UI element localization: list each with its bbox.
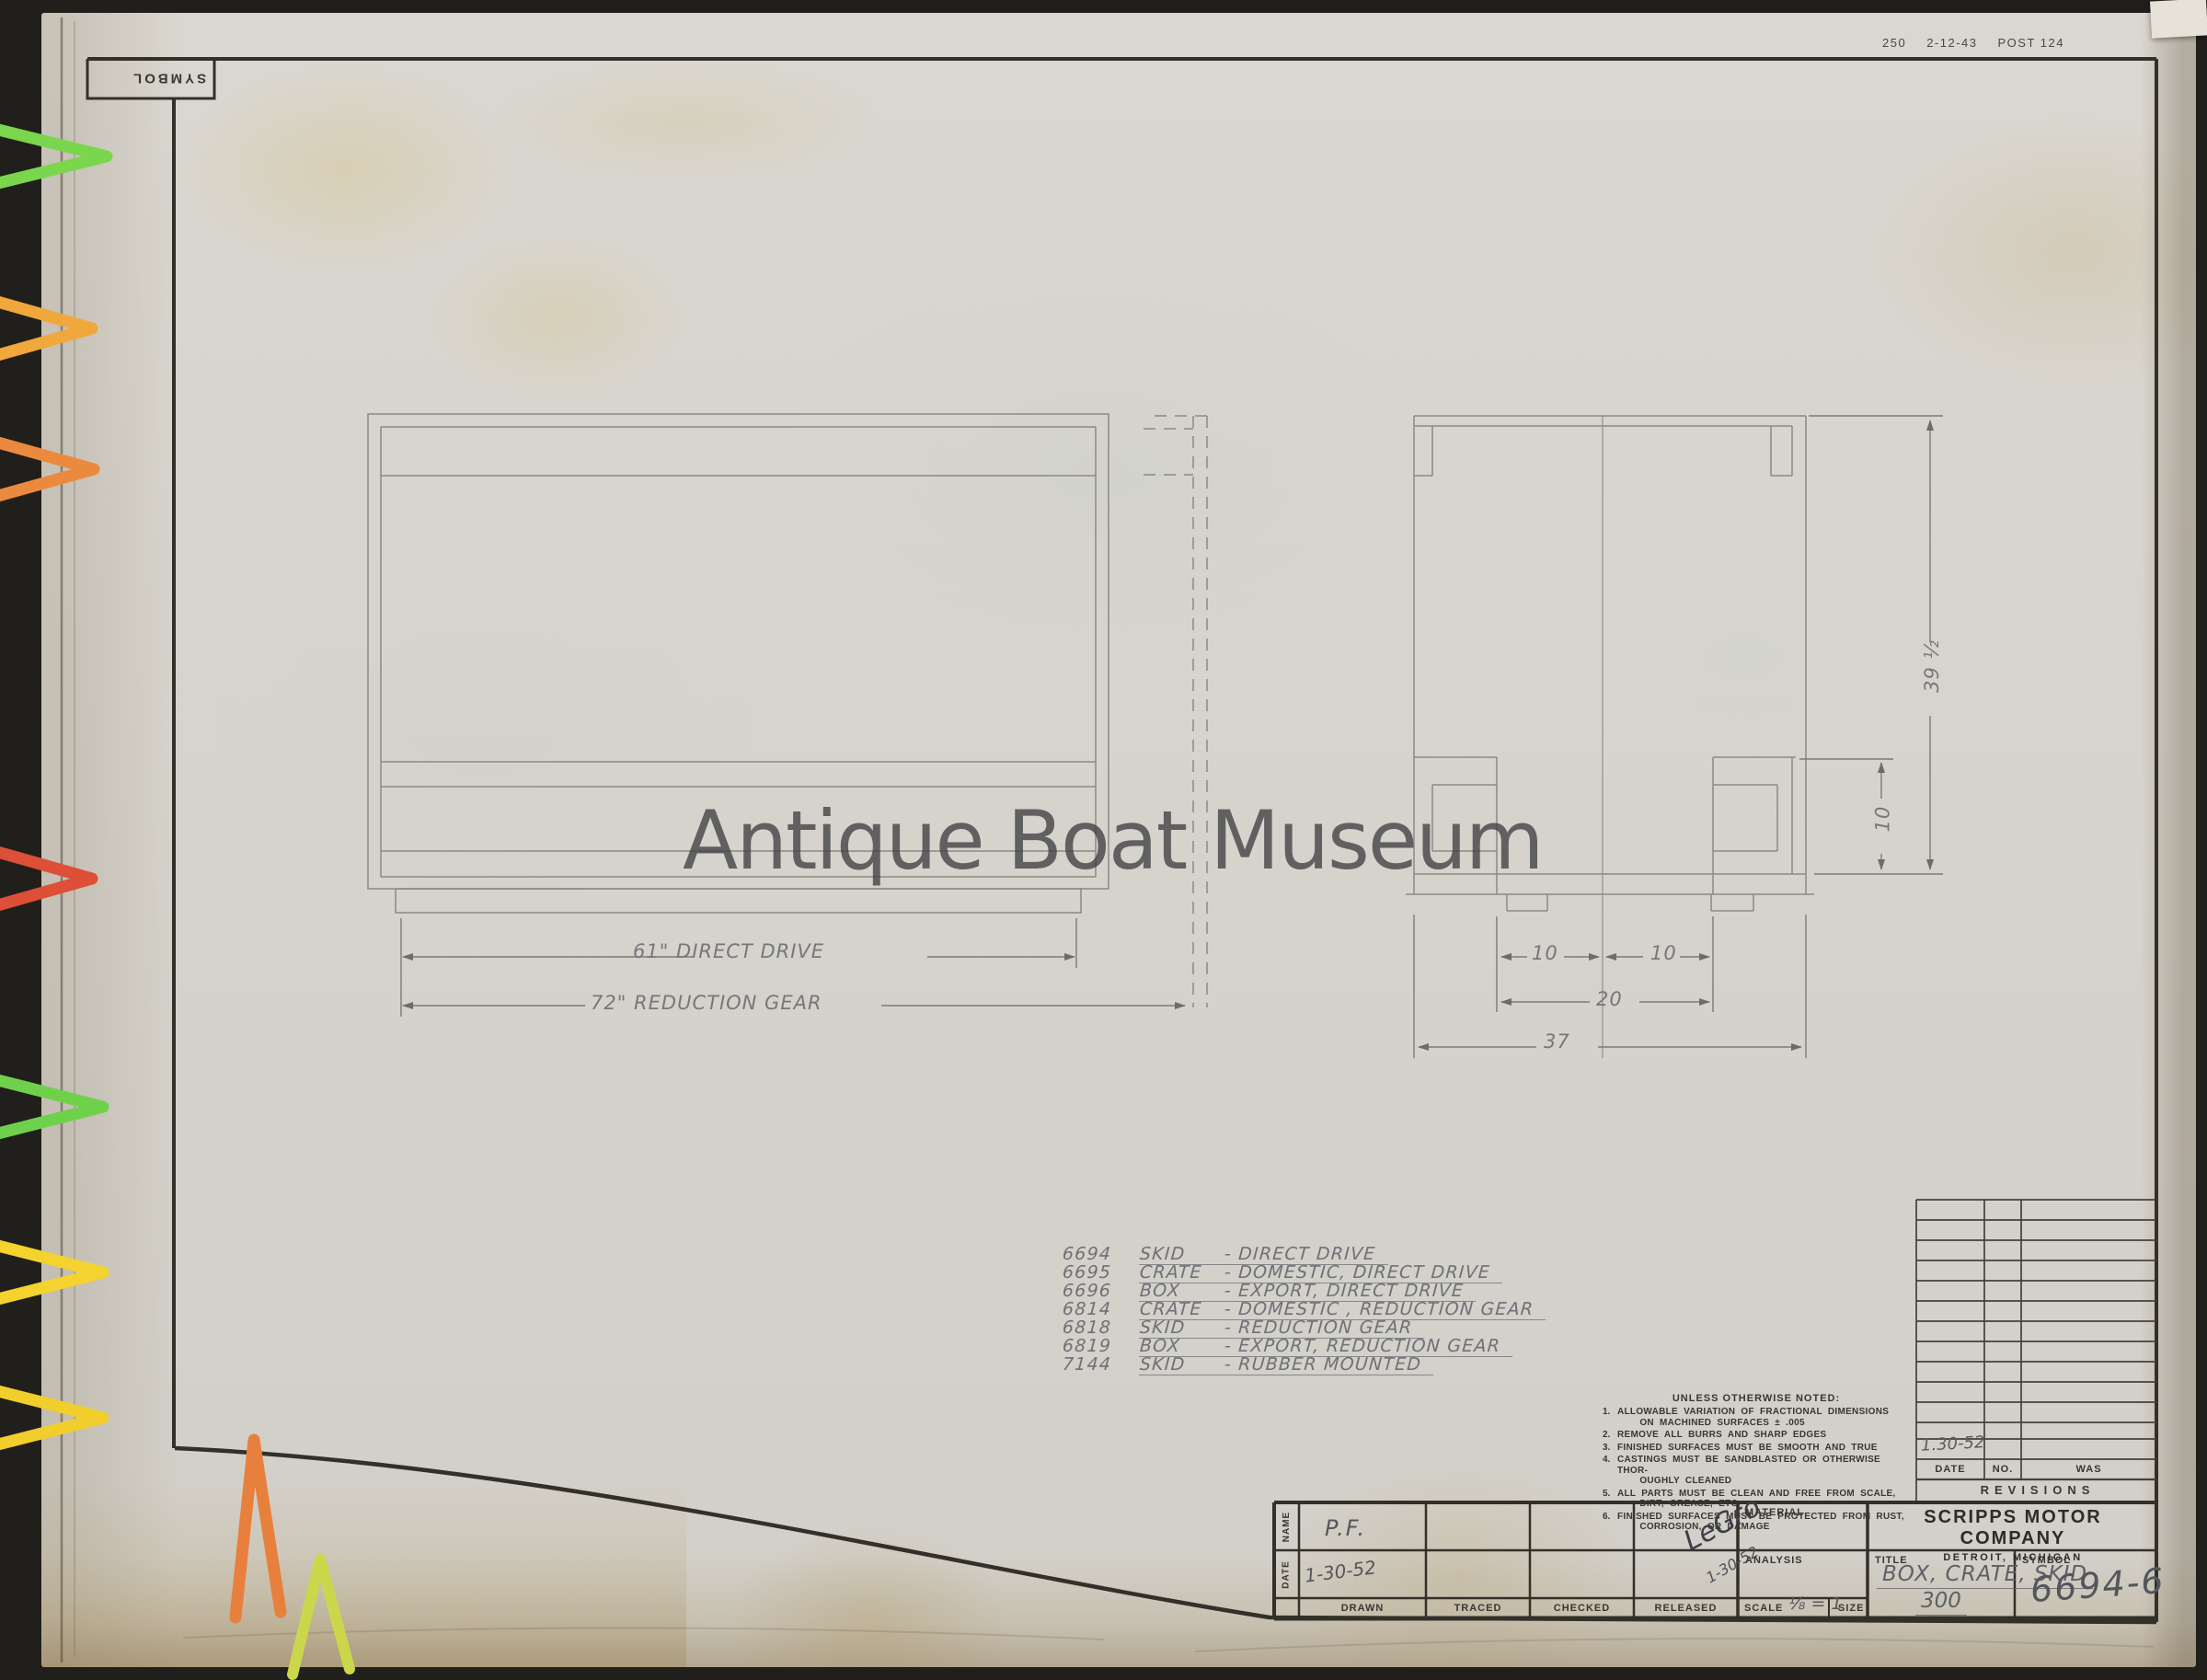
part-type: CRATE (1139, 1262, 1225, 1283)
part-desc: - RUBBER MOUNTED (1224, 1354, 1422, 1375)
dim-block: 10 (1871, 806, 1893, 833)
parts-list-row: 6694 SKID- DIRECT DRIVE (1062, 1244, 1547, 1262)
paper-clip-yellow-2 (0, 1390, 103, 1445)
paper-clip-orange-bottom (236, 1440, 281, 1617)
note-number: 2. (1603, 1430, 1617, 1441)
stamp-code: 250 (1882, 37, 1906, 51)
watermark-text: Antique Boat Museum (683, 793, 1542, 888)
dim-ten-left: 10 (1532, 942, 1558, 964)
print-stamp: 250 2-12-43 POST 124 (1882, 37, 2064, 51)
symbol-label: SYMBOL (2022, 1555, 2071, 1567)
date-row-label-container: DATE (1274, 1550, 1299, 1598)
paper-clip-green-top (0, 129, 107, 184)
note-number: 3. (1603, 1443, 1617, 1454)
dim-thirty-seven: 37 (1544, 1030, 1570, 1053)
note-item: 3. FINISHED SURFACES MUST BE SMOOTH AND … (1603, 1443, 1910, 1454)
part-type: BOX (1139, 1336, 1225, 1356)
stamp-date: 2-12-43 (1926, 37, 1977, 51)
part-desc: - REDUCTION GEAR (1224, 1318, 1413, 1338)
note-text: REMOVE ALL BURRS AND SHARP EDGES (1617, 1430, 1910, 1441)
scale-value: ⅛ = 1 (1788, 1594, 1843, 1615)
part-number: 6814 (1062, 1299, 1141, 1319)
company-name: SCRIPPS MOTOR COMPANY (1869, 1507, 2156, 1549)
parts-list: 6694 SKID- DIRECT DRIVE 6695 CRATE- DOME… (1063, 1244, 1546, 1373)
note-item: 2. REMOVE ALL BURRS AND SHARP EDGES (1603, 1430, 1910, 1441)
dim-height-container: 39 ½ (1893, 627, 1971, 705)
dim-twenty: 20 (1596, 988, 1623, 1010)
parts-list-row: 7144 SKID- RUBBER MOUNTED (1062, 1354, 1547, 1373)
part-type: CRATE (1139, 1299, 1225, 1319)
released-column-label: RELEASED (1634, 1603, 1738, 1614)
part-number: 7144 (1062, 1354, 1141, 1375)
date-row-label: DATE (1282, 1560, 1292, 1588)
paper-clip-yellow-green-bottom (293, 1559, 350, 1674)
part-desc: - EXPORT, REDUCTION GEAR (1224, 1336, 1501, 1356)
part-desc: - DOMESTIC , REDUCTION GEAR (1224, 1299, 1535, 1319)
note-item: 4. CASTINGS MUST BE SANDBLASTED OR OTHER… (1603, 1455, 1910, 1487)
paper-clip-yellow-1 (0, 1245, 103, 1300)
note-text: ALLOWABLE VARIATION OF FRACTIONAL DIMENS… (1617, 1407, 1910, 1428)
size-label: SIZE (1838, 1603, 1864, 1615)
checked-column-label: CHECKED (1530, 1603, 1634, 1614)
revisions-was-header: WAS (2021, 1464, 2156, 1475)
note-item: 1. ALLOWABLE VARIATION OF FRACTIONAL DIM… (1603, 1407, 1910, 1428)
end-view-linework (1406, 416, 1814, 1058)
note-number: 5. (1603, 1489, 1617, 1510)
name-row-label-container: NAME (1274, 1502, 1299, 1550)
upside-down-symbol-label: SYMBOL (131, 70, 206, 86)
scanned-blueprint-page: 250 2-12-43 POST 124 SYMBOL Antique Boat… (0, 0, 2207, 1680)
part-number: 6818 (1062, 1318, 1141, 1338)
part-type: BOX (1139, 1281, 1225, 1301)
revisions-date-header: DATE (1916, 1464, 1984, 1475)
drawn-name-entry: P.F. (1325, 1516, 1366, 1542)
parts-list-row: 6819 BOX- EXPORT, REDUCTION GEAR (1062, 1336, 1547, 1354)
notes-title: UNLESS OTHERWISE NOTED: (1603, 1393, 1910, 1404)
paper-clip-orange (0, 442, 94, 497)
note-text: CASTINGS MUST BE SANDBLASTED OR OTHERWIS… (1617, 1455, 1910, 1487)
dim-block-container: 10 (1844, 780, 1921, 857)
analysis-label: ANALYSIS (1745, 1555, 1803, 1567)
dim-height: 39 ½ (1921, 639, 1943, 693)
paper-clip-amber (0, 301, 92, 356)
part-desc: - EXPORT, DIRECT DRIVE (1224, 1281, 1465, 1301)
parts-list-row: 6818 SKID- REDUCTION GEAR (1062, 1318, 1547, 1336)
dim-reduction-gear: 72" REDUCTION GEAR (591, 992, 822, 1014)
note-number: 6. (1603, 1512, 1617, 1533)
parts-list-row: 6696 BOX- EXPORT, DIRECT DRIVE (1062, 1281, 1547, 1299)
part-number: 6696 (1062, 1281, 1141, 1301)
part-number: 6819 (1062, 1336, 1141, 1356)
drawn-column-label: DRAWN (1299, 1603, 1426, 1614)
stamp-post: POST 124 (1998, 37, 2064, 51)
paper-clip-red (0, 851, 92, 906)
company-block: SCRIPPS MOTOR COMPANY DETROIT, MICHIGAN (1869, 1507, 2156, 1563)
note-number: 4. (1603, 1455, 1617, 1487)
parts-list-row: 6814 CRATE- DOMESTIC , REDUCTION GEAR (1062, 1299, 1547, 1318)
revision-entry-date: 1.30-52 (1921, 1433, 1985, 1456)
part-number: 6694 (1062, 1244, 1141, 1264)
revisions-table-grid (1916, 1200, 2156, 1502)
dim-direct-drive: 61" DIRECT DRIVE (633, 940, 824, 962)
paper-clip-green-lower (0, 1079, 103, 1134)
part-type: SKID (1139, 1318, 1225, 1338)
revisions-no-header: NO. (1984, 1464, 2021, 1475)
revisions-title: REVISIONS (1927, 1483, 2148, 1497)
note-text: FINISHED SURFACES MUST BE SMOOTH AND TRU… (1617, 1443, 1910, 1454)
dim-ten-right: 10 (1650, 942, 1677, 964)
scale-label: SCALE (1744, 1603, 1783, 1615)
part-desc: - DIRECT DRIVE (1224, 1244, 1376, 1264)
drawing-title-sub: 300 (1915, 1589, 1967, 1616)
part-type: SKID (1139, 1244, 1225, 1264)
part-desc: - DOMESTIC, DIRECT DRIVE (1224, 1262, 1491, 1283)
traced-column-label: TRACED (1426, 1603, 1530, 1614)
material-label: MATERIAL (1745, 1507, 1804, 1519)
name-row-label: NAME (1282, 1511, 1292, 1541)
hidden-extension-lines (1144, 416, 1207, 1007)
part-number: 6695 (1062, 1262, 1141, 1283)
note-number: 1. (1603, 1407, 1617, 1428)
part-type: SKID (1139, 1354, 1225, 1375)
parts-list-row: 6695 CRATE- DOMESTIC, DIRECT DRIVE (1062, 1262, 1547, 1281)
